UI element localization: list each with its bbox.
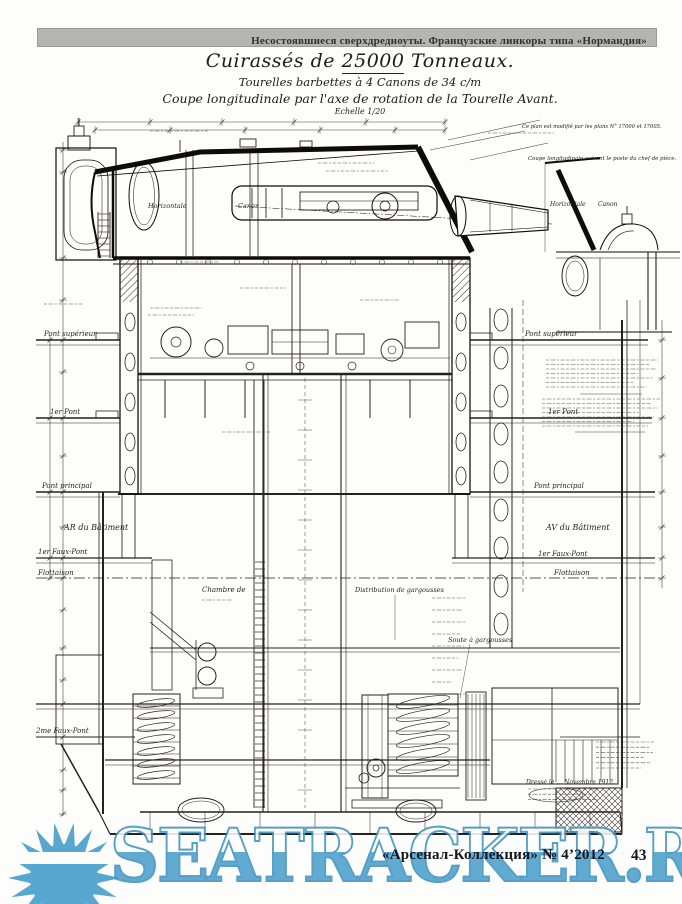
trunk-annotation-lines	[432, 598, 466, 694]
stowage-planks	[556, 740, 610, 782]
machinery-detail-circles	[246, 362, 356, 370]
barbette-lightening-holes-left	[125, 313, 135, 485]
inset-caption: Coupe longitudinale suivant le poste du …	[528, 155, 677, 162]
frame-strips	[150, 308, 512, 690]
handwritten-note-block-1	[546, 360, 658, 387]
label-distribution-gargousses: Distribution de gargousses	[354, 586, 445, 594]
blueprint-drawing: Horizontale Canon Horizontale Canon Cham…	[0, 0, 682, 904]
label-soute-gargousses: Soute à gargousses	[448, 636, 513, 644]
deck-label-1er-pont-right: 1er Pont	[548, 408, 578, 416]
deck-label-pont-superieur-right: Pont supérieur	[524, 330, 578, 338]
orientation-label-right: AV du Bâtiment	[545, 523, 610, 532]
label-horizontale-main: Horizontale	[147, 202, 187, 210]
turret-access-ladder-rungs	[98, 214, 110, 256]
deck-label-pont-principal-right: Pont principal	[533, 482, 584, 490]
working-chamber-machinery	[138, 264, 452, 418]
barbette	[120, 258, 470, 558]
deck-label-1er-pont-left: 1er Pont	[50, 408, 80, 416]
label-canon-main: Canon	[238, 202, 259, 210]
deck-label-1er-faux-pont-left: 1er Faux-Pont	[38, 548, 88, 556]
frame-lightening-holes	[494, 309, 508, 635]
deck-label-pont-principal-left: Pont principal	[41, 482, 92, 490]
waterline-label-left: Flottaison	[37, 569, 74, 577]
label-chambre: Chambre de	[202, 586, 246, 594]
approval-note-lines	[596, 742, 654, 768]
barbette-lightening-holes-right	[456, 313, 466, 485]
tick-marks-top	[76, 118, 448, 134]
note-top-right: Ce plan est modifié par les plans N° 170…	[522, 123, 662, 130]
page-number: 43	[631, 847, 647, 865]
label-horizontale-inset: Horizontale	[549, 201, 586, 208]
deck-label-pont-superieur-left: Pont supérieur	[43, 330, 97, 338]
deck-label-2me-faux-pont-left: 2me Faux-Pont	[35, 727, 89, 735]
orientation-label-left: AR du Bâtiment	[63, 523, 129, 532]
deck-label-1er-faux-pont-right: 1er Faux-Pont	[538, 550, 588, 558]
footer-journal-title: «Арсенал-Коллекция» № 4’2012	[382, 847, 605, 864]
vertical-hatch-strip	[468, 694, 484, 798]
turret	[56, 118, 552, 264]
waterline-label-right: Flottaison	[553, 569, 590, 577]
signature-note: Dressé le … Novembre 1912.	[525, 779, 615, 786]
ammunition-trunk	[254, 374, 346, 812]
shells-left	[137, 697, 176, 781]
inset-section	[545, 158, 680, 332]
scanned-page: Несостоявшиеся сверхдредноуты. Французск…	[0, 0, 682, 904]
label-canon-inset: Canon	[598, 201, 618, 208]
shells-right	[396, 693, 451, 776]
